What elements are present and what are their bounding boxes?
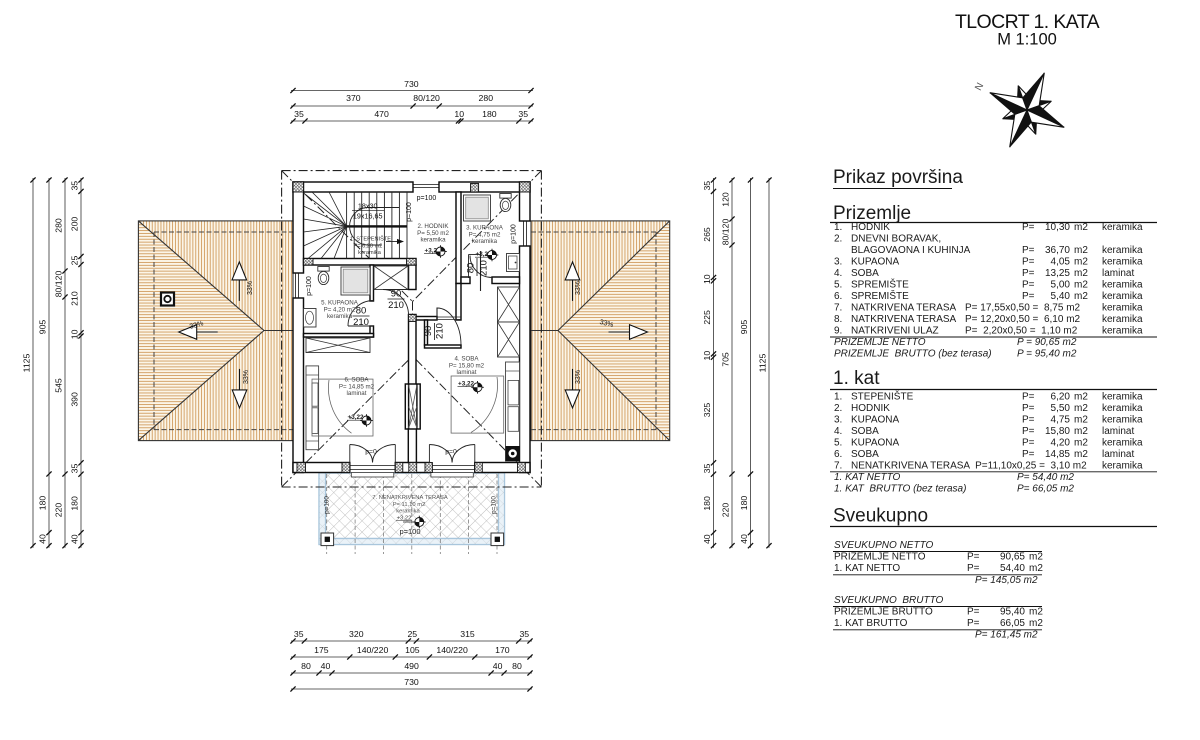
- svg-text:210: 210: [70, 291, 80, 306]
- svg-text:SOBA: SOBA: [851, 426, 879, 437]
- svg-text:220: 220: [721, 503, 731, 518]
- svg-text:P= 2,20x0,50 = 1,10 m2: P= 2,20x0,50 = 1,10 m2: [965, 326, 1078, 337]
- svg-text:p=100: p=100: [491, 496, 498, 514]
- svg-text:25: 25: [407, 629, 417, 639]
- svg-text:1125: 1125: [22, 353, 32, 372]
- svg-text:1125: 1125: [758, 353, 768, 372]
- svg-text:keramika: keramika: [472, 238, 498, 245]
- svg-text:SOBA: SOBA: [851, 449, 879, 460]
- svg-text:210: 210: [353, 317, 369, 328]
- svg-text:NENATKRIVENA TERASA P=11,10x0: NENATKRIVENA TERASA P=11,10x0,25 = 3,10 …: [851, 461, 1087, 472]
- svg-text:730: 730: [404, 677, 419, 687]
- svg-text:1. KAT BRUTTO: 1. KAT BRUTTO: [834, 618, 908, 629]
- svg-text:P=: P=: [967, 607, 980, 618]
- svg-text:35: 35: [294, 629, 304, 639]
- svg-text:m2: m2: [1074, 426, 1088, 437]
- svg-text:p=100: p=100: [417, 195, 437, 202]
- svg-text:PRIZEMLJE NETTO: PRIZEMLJE NETTO: [834, 337, 926, 348]
- svg-text:p=100: p=100: [399, 527, 420, 536]
- svg-text:P=: P=: [967, 563, 980, 574]
- svg-text:keramika: keramika: [1102, 257, 1143, 268]
- svg-text:8.: 8.: [834, 314, 842, 325]
- svg-text:35: 35: [70, 181, 80, 191]
- svg-text:keramika: keramika: [1102, 245, 1143, 256]
- svg-text:14,85: 14,85: [1045, 449, 1070, 460]
- svg-text:laminat: laminat: [457, 369, 477, 376]
- svg-text:keramika: keramika: [1102, 303, 1143, 314]
- svg-text:80/120: 80/120: [721, 219, 731, 246]
- svg-text:SOBA: SOBA: [851, 268, 879, 279]
- svg-text:laminat: laminat: [347, 390, 367, 397]
- svg-text:PRIZEMLJE BRUTTO (bez terasa): PRIZEMLJE BRUTTO (bez terasa): [834, 349, 992, 360]
- svg-text:7. NENATKRIVENA TERASA: 7. NENATKRIVENA TERASA: [372, 495, 448, 501]
- svg-text:NATKRIVENA TERASA: NATKRIVENA TERASA: [851, 303, 957, 314]
- svg-text:P=: P=: [967, 552, 980, 563]
- svg-text:keramika: keramika: [1102, 438, 1143, 449]
- svg-text:P= 66,05 m2: P= 66,05 m2: [1017, 484, 1074, 495]
- svg-text:80/120: 80/120: [413, 93, 440, 103]
- svg-text:35: 35: [294, 109, 304, 119]
- svg-text:905: 905: [739, 320, 749, 335]
- svg-text:490: 490: [404, 661, 419, 671]
- svg-text:180: 180: [70, 496, 80, 511]
- svg-text:STEPENIŠTE: STEPENIŠTE: [851, 390, 914, 403]
- svg-text:SVEUKUPNO BRUTTO: SVEUKUPNO BRUTTO: [834, 595, 943, 606]
- svg-text:P=: P=: [1022, 403, 1035, 414]
- svg-text:P=: P=: [1022, 426, 1035, 437]
- svg-text:m2: m2: [1074, 438, 1088, 449]
- svg-text:6.: 6.: [834, 449, 842, 460]
- svg-text:keramika: keramika: [1102, 280, 1143, 291]
- svg-text:325: 325: [702, 403, 712, 418]
- svg-text:10,30: 10,30: [1045, 222, 1070, 233]
- svg-text:4,05: 4,05: [1051, 257, 1071, 268]
- svg-text:laminat: laminat: [1102, 426, 1134, 437]
- svg-text:m2: m2: [1074, 257, 1088, 268]
- svg-text:200: 200: [70, 217, 80, 232]
- svg-text:p=100: p=100: [510, 224, 517, 244]
- svg-text:210: 210: [479, 260, 490, 276]
- svg-text:140/220: 140/220: [357, 645, 389, 655]
- svg-text:5,00: 5,00: [1051, 280, 1071, 291]
- svg-text:9.: 9.: [834, 326, 842, 337]
- svg-text:P=: P=: [1022, 415, 1035, 426]
- svg-text:80: 80: [356, 306, 367, 317]
- svg-text:210: 210: [388, 300, 404, 311]
- svg-text:PRIZEMLJE BRUTTO: PRIZEMLJE BRUTTO: [834, 607, 933, 618]
- svg-text:6.: 6.: [834, 291, 842, 302]
- svg-text:laminat: laminat: [1102, 449, 1134, 460]
- svg-text:370: 370: [346, 93, 361, 103]
- svg-text:33%: 33%: [243, 370, 250, 384]
- svg-text:m2: m2: [1074, 291, 1088, 302]
- svg-text:35: 35: [519, 629, 529, 639]
- svg-text:keramika: keramika: [1102, 392, 1143, 403]
- svg-text:keramika: keramika: [1102, 415, 1143, 426]
- svg-text:545: 545: [54, 378, 64, 393]
- svg-text:35: 35: [702, 181, 712, 191]
- svg-text:M 1:100: M 1:100: [997, 31, 1057, 49]
- svg-text:keramika: keramika: [1102, 291, 1143, 302]
- svg-text:470: 470: [374, 109, 389, 119]
- svg-text:SVEUKUPNO NETTO: SVEUKUPNO NETTO: [834, 540, 933, 551]
- svg-text:280: 280: [54, 218, 64, 233]
- svg-text:180: 180: [702, 496, 712, 511]
- svg-text:Prikaz površina: Prikaz površina: [833, 167, 963, 188]
- svg-text:P = 95,40 m2: P = 95,40 m2: [1017, 349, 1077, 360]
- svg-text:90: 90: [391, 289, 402, 300]
- svg-text:BLAGOVAONA I KUHINJA: BLAGOVAONA I KUHINJA: [851, 245, 971, 256]
- svg-text:40: 40: [702, 534, 712, 544]
- svg-text:DNEVNI BORAVAK,: DNEVNI BORAVAK,: [851, 234, 941, 245]
- svg-text:SPREMIŠTE: SPREMIŠTE: [851, 278, 909, 291]
- svg-text:HODNIK: HODNIK: [851, 403, 890, 414]
- svg-text:180: 180: [739, 496, 749, 511]
- svg-text:m2: m2: [1029, 618, 1043, 629]
- svg-text:P=: P=: [1022, 449, 1035, 460]
- svg-text:13,25: 13,25: [1045, 268, 1070, 279]
- svg-text:40: 40: [70, 534, 80, 544]
- svg-text:7.: 7.: [834, 303, 842, 314]
- svg-text:p=100: p=100: [406, 202, 413, 222]
- svg-text:P=: P=: [1022, 291, 1035, 302]
- svg-text:18x30: 18x30: [358, 202, 378, 211]
- svg-text:keramika: keramika: [327, 313, 353, 320]
- svg-text:33%: 33%: [575, 370, 582, 384]
- svg-text:180: 180: [38, 496, 48, 511]
- svg-text:265: 265: [702, 227, 712, 242]
- svg-text:40: 40: [38, 534, 48, 544]
- svg-text:1. kat: 1. kat: [833, 368, 880, 389]
- svg-text:keramika: keramika: [1102, 326, 1143, 337]
- svg-text:m2: m2: [1074, 268, 1088, 279]
- svg-text:90: 90: [423, 326, 434, 337]
- svg-text:220: 220: [54, 503, 64, 518]
- svg-text:m2: m2: [1074, 449, 1088, 460]
- svg-text:4,20: 4,20: [1051, 438, 1071, 449]
- svg-text:keramika: keramika: [1102, 403, 1143, 414]
- svg-text:140/220: 140/220: [436, 645, 468, 655]
- svg-text:1. KAT BRUTTO (bez terasa): 1. KAT BRUTTO (bez terasa): [834, 484, 966, 495]
- svg-text:P=: P=: [1022, 438, 1035, 449]
- svg-text:KUPAONA: KUPAONA: [851, 415, 899, 426]
- svg-text:P=: P=: [1022, 392, 1035, 403]
- svg-text:90,65: 90,65: [1000, 552, 1025, 563]
- svg-text:P=: P=: [1022, 257, 1035, 268]
- svg-text:m2: m2: [1029, 552, 1043, 563]
- svg-text:2.: 2.: [834, 234, 842, 245]
- svg-text:1.: 1.: [834, 392, 842, 403]
- svg-text:4.: 4.: [834, 426, 842, 437]
- svg-text:P= 17,55x0,50 = 8,75 m2: P= 17,55x0,50 = 8,75 m2: [965, 303, 1081, 314]
- svg-text:80: 80: [301, 661, 311, 671]
- svg-text:P= 54,40 m2: P= 54,40 m2: [1017, 472, 1074, 483]
- svg-text:m2: m2: [1074, 245, 1088, 256]
- svg-text:4.: 4.: [834, 268, 842, 279]
- svg-text:10: 10: [454, 109, 464, 119]
- svg-text:315: 315: [460, 629, 475, 639]
- svg-text:225: 225: [702, 310, 712, 325]
- svg-text:705: 705: [721, 352, 731, 367]
- svg-text:NATKRIVENA TERASA: NATKRIVENA TERASA: [851, 314, 957, 325]
- svg-text:P = 90,65 m2: P = 90,65 m2: [1017, 337, 1077, 348]
- svg-text:35: 35: [518, 109, 528, 119]
- svg-text:keramika: keramika: [358, 250, 382, 256]
- svg-text:10: 10: [702, 351, 712, 361]
- svg-text:m2: m2: [1074, 415, 1088, 426]
- svg-text:p=0: p=0: [445, 449, 457, 456]
- svg-text:5,40: 5,40: [1051, 291, 1071, 302]
- svg-text:3.: 3.: [834, 415, 842, 426]
- svg-text:P=: P=: [1022, 222, 1035, 233]
- svg-text:3.: 3.: [834, 257, 842, 268]
- svg-text:keramika: keramika: [1102, 222, 1143, 233]
- svg-text:m2: m2: [1029, 607, 1043, 618]
- svg-text:P= 11,10 m2: P= 11,10 m2: [393, 502, 426, 508]
- svg-text:19x16,65: 19x16,65: [353, 212, 383, 221]
- svg-text:KUPAONA: KUPAONA: [851, 257, 899, 268]
- svg-text:5,50: 5,50: [1051, 403, 1071, 414]
- svg-text:KUPAONA: KUPAONA: [851, 438, 899, 449]
- svg-text:10: 10: [702, 274, 712, 284]
- svg-text:320: 320: [349, 629, 364, 639]
- svg-text:P= 145,05 m2: P= 145,05 m2: [975, 575, 1038, 586]
- svg-text:HODNIK: HODNIK: [851, 222, 890, 233]
- svg-text:7.: 7.: [834, 461, 842, 472]
- svg-text:p=0: p=0: [365, 449, 377, 456]
- svg-text:6,20: 6,20: [1051, 392, 1071, 403]
- svg-text:33%: 33%: [575, 281, 582, 295]
- svg-text:P= 12,20x0,50 = 6,10 m2: P= 12,20x0,50 = 6,10 m2: [965, 314, 1081, 325]
- svg-text:4,75: 4,75: [1051, 415, 1071, 426]
- svg-text:Sveukupno: Sveukupno: [833, 506, 928, 527]
- svg-text:80: 80: [466, 263, 477, 274]
- svg-text:p=100: p=100: [324, 496, 331, 514]
- svg-text:15,80: 15,80: [1045, 426, 1070, 437]
- svg-text:170: 170: [495, 645, 510, 655]
- svg-text:25: 25: [70, 256, 80, 266]
- svg-text:36,70: 36,70: [1045, 245, 1070, 256]
- svg-text:280: 280: [479, 93, 494, 103]
- svg-text:35: 35: [70, 464, 80, 474]
- svg-text:1. KAT NETTO: 1. KAT NETTO: [834, 563, 900, 574]
- svg-text:95,40: 95,40: [1000, 607, 1025, 618]
- svg-text:m2: m2: [1074, 392, 1088, 403]
- svg-text:390: 390: [70, 392, 80, 407]
- svg-text:105: 105: [405, 645, 420, 655]
- svg-text:180: 180: [482, 109, 497, 119]
- svg-text:80: 80: [512, 661, 522, 671]
- svg-text:m2: m2: [1074, 280, 1088, 291]
- svg-text:PRIZEMLJE NETTO: PRIZEMLJE NETTO: [834, 552, 926, 563]
- svg-text:35: 35: [702, 464, 712, 474]
- svg-text:40: 40: [321, 661, 331, 671]
- svg-text:40: 40: [493, 661, 503, 671]
- svg-text:1.: 1.: [834, 222, 842, 233]
- svg-text:1. KAT NETTO: 1. KAT NETTO: [834, 472, 901, 483]
- svg-text:2.: 2.: [834, 403, 842, 414]
- svg-text:Prizemlje: Prizemlje: [833, 203, 911, 224]
- svg-text:120: 120: [721, 192, 731, 207]
- svg-text:keramika: keramika: [1102, 461, 1143, 472]
- svg-text:66,05: 66,05: [1000, 618, 1025, 629]
- svg-text:5.: 5.: [834, 438, 842, 449]
- svg-text:80/120: 80/120: [54, 271, 64, 298]
- svg-text:keramika: keramika: [420, 237, 446, 244]
- svg-text:P=: P=: [1022, 268, 1035, 279]
- svg-text:40: 40: [739, 534, 749, 544]
- svg-text:905: 905: [38, 320, 48, 335]
- svg-text:NATKRIVENI ULAZ: NATKRIVENI ULAZ: [851, 326, 939, 337]
- svg-text:keramika: keramika: [1102, 314, 1143, 325]
- svg-text:33%: 33%: [247, 281, 254, 295]
- svg-text:175: 175: [314, 645, 329, 655]
- svg-text:P=: P=: [1022, 280, 1035, 291]
- svg-text:1. STEPENIŠTE: 1. STEPENIŠTE: [350, 236, 391, 243]
- svg-text:m2: m2: [1074, 403, 1088, 414]
- svg-text:P=: P=: [1022, 245, 1035, 256]
- svg-text:10: 10: [70, 329, 80, 339]
- svg-text:p=100: p=100: [306, 276, 313, 296]
- svg-text:P= 6,20 m2: P= 6,20 m2: [354, 244, 383, 250]
- svg-text:SPREMIŠTE: SPREMIŠTE: [851, 289, 909, 302]
- svg-text:54,40: 54,40: [1000, 563, 1025, 574]
- svg-text:keramika: keramika: [396, 509, 420, 515]
- svg-text:730: 730: [404, 79, 419, 89]
- svg-text:m2: m2: [1029, 563, 1043, 574]
- svg-text:laminat: laminat: [1102, 268, 1134, 279]
- svg-text:m2: m2: [1074, 222, 1088, 233]
- svg-text:210: 210: [435, 323, 446, 339]
- svg-text:P=: P=: [967, 618, 980, 629]
- svg-text:5.: 5.: [834, 280, 842, 291]
- svg-text:P= 161,45 m2: P= 161,45 m2: [975, 630, 1038, 641]
